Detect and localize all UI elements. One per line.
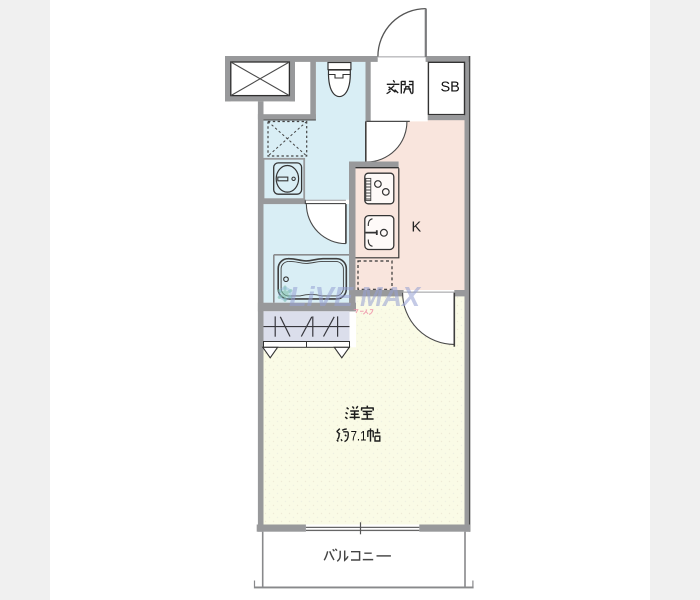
- svg-text:7.1: 7.1: [351, 429, 367, 444]
- svg-text:K: K: [412, 220, 422, 236]
- svg-text:LiVE: LiVE: [289, 281, 354, 312]
- svg-text:SB: SB: [441, 80, 460, 96]
- svg-text:MAX: MAX: [360, 281, 422, 312]
